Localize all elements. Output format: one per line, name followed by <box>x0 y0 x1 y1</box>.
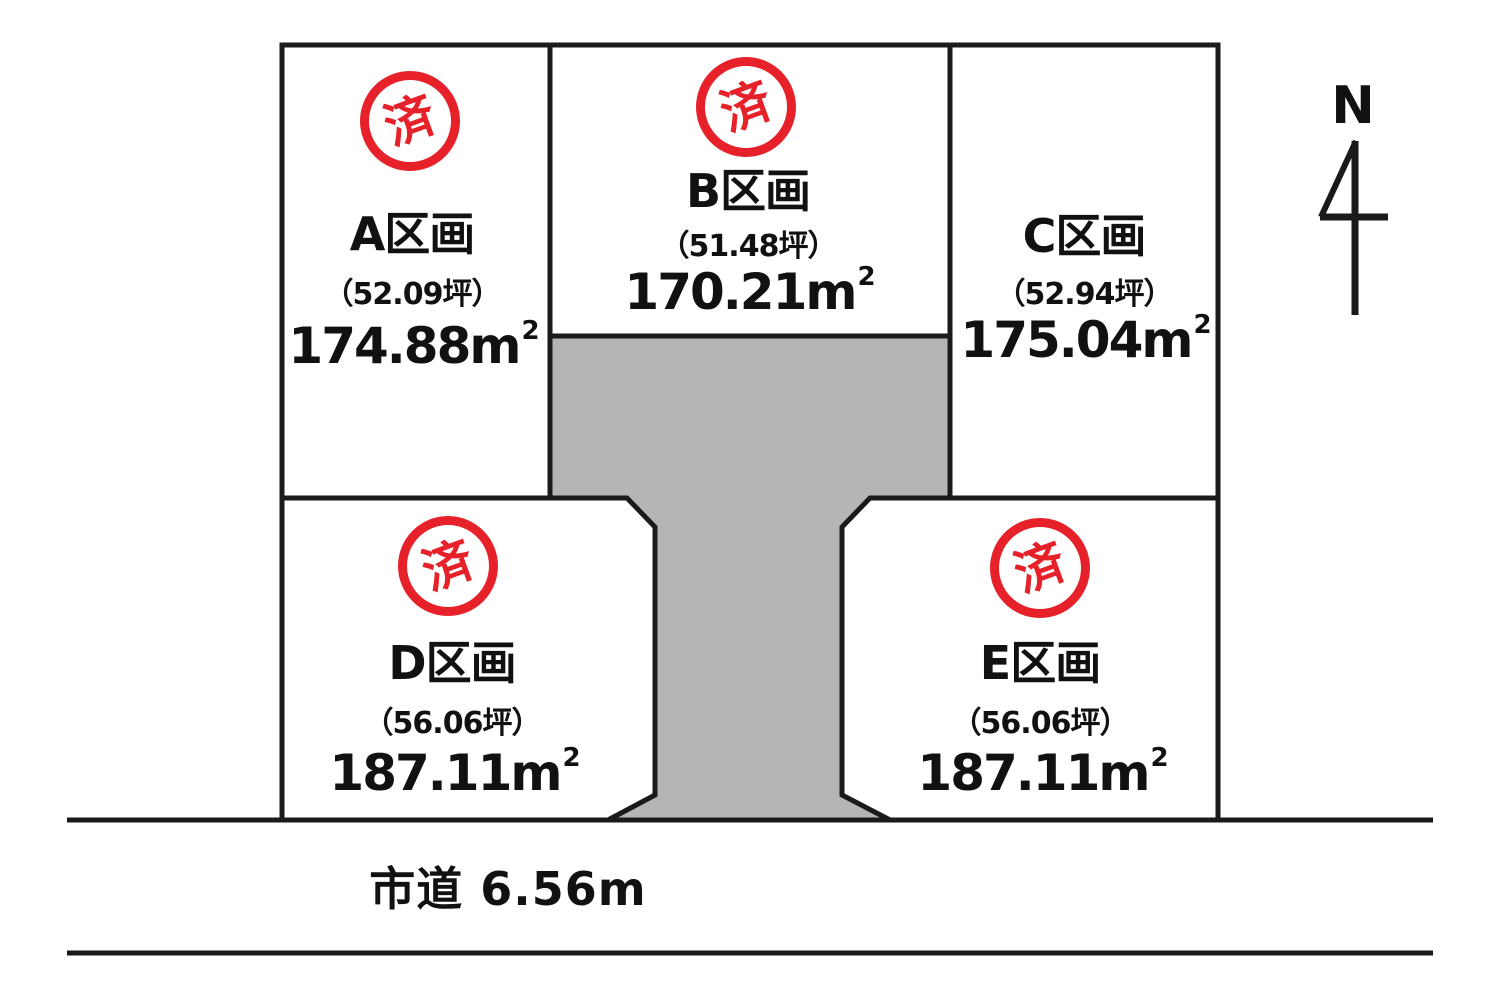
plot-e-name: E区画 <box>980 627 1100 693</box>
plot-b-area-unit-sup: 2 <box>857 262 875 292</box>
plot-e-area-unit: m <box>1098 744 1148 802</box>
plot-e-area-value: 187.11 <box>917 744 1098 802</box>
road-label: 市道 6.56m <box>369 853 646 919</box>
plot-c-area: 175.04m2 <box>960 311 1211 369</box>
plot-b-tsubo: （51.48坪） <box>660 221 837 265</box>
plot-a-area-unit: m <box>469 317 519 375</box>
plot-b-area: 170.21m2 <box>624 263 875 321</box>
north-arrow-icon <box>1320 141 1388 315</box>
plot-e-sold-badge: 済 <box>990 518 1090 618</box>
plot-c-tsubo: （52.94坪） <box>996 269 1173 313</box>
plot-d-area: 187.11m2 <box>329 744 580 802</box>
plot-d-sold-badge: 済 <box>398 516 498 616</box>
plot-b-name: B区画 <box>686 155 810 221</box>
plot-b-area-value: 170.21 <box>624 263 805 321</box>
plot-d-area-unit: m <box>510 744 560 802</box>
plot-c-area-unit: m <box>1141 311 1191 369</box>
plot-a-area-unit-sup: 2 <box>521 316 539 346</box>
plot-a-sold-label: 済 <box>378 89 442 153</box>
plot-b-area-unit: m <box>805 263 855 321</box>
plot-b-sold-label: 済 <box>714 75 778 139</box>
plot-a-area: 174.88m2 <box>288 317 539 375</box>
plot-d-sold-label: 済 <box>416 534 480 598</box>
plot-e-area-unit-sup: 2 <box>1150 743 1168 773</box>
plot-e-tsubo: （56.06坪） <box>952 698 1129 742</box>
plot-e-sold-label: 済 <box>1008 536 1072 600</box>
north-label: N <box>1331 76 1375 136</box>
plot-c-area-value: 175.04 <box>960 311 1141 369</box>
plot-d-tsubo: （56.06坪） <box>364 698 541 742</box>
plot-a-sold-badge: 済 <box>360 71 460 171</box>
plot-c-area-unit-sup: 2 <box>1193 310 1211 340</box>
plot-e-area: 187.11m2 <box>917 744 1168 802</box>
plot-a-tsubo: （52.09坪） <box>324 269 501 313</box>
plot-a-name: A区画 <box>350 198 475 264</box>
plot-d-name: D区画 <box>388 627 515 693</box>
plot-c-name: C区画 <box>1023 200 1146 266</box>
plot-d-area-unit-sup: 2 <box>562 743 580 773</box>
plot-a-area-value: 174.88 <box>288 317 469 375</box>
site-plan-page: { "plots": [ { "name": "A区画", "tsubo": "… <box>0 0 1500 1000</box>
plot-b-sold-badge: 済 <box>696 57 796 157</box>
plot-d-area-value: 187.11 <box>329 744 510 802</box>
